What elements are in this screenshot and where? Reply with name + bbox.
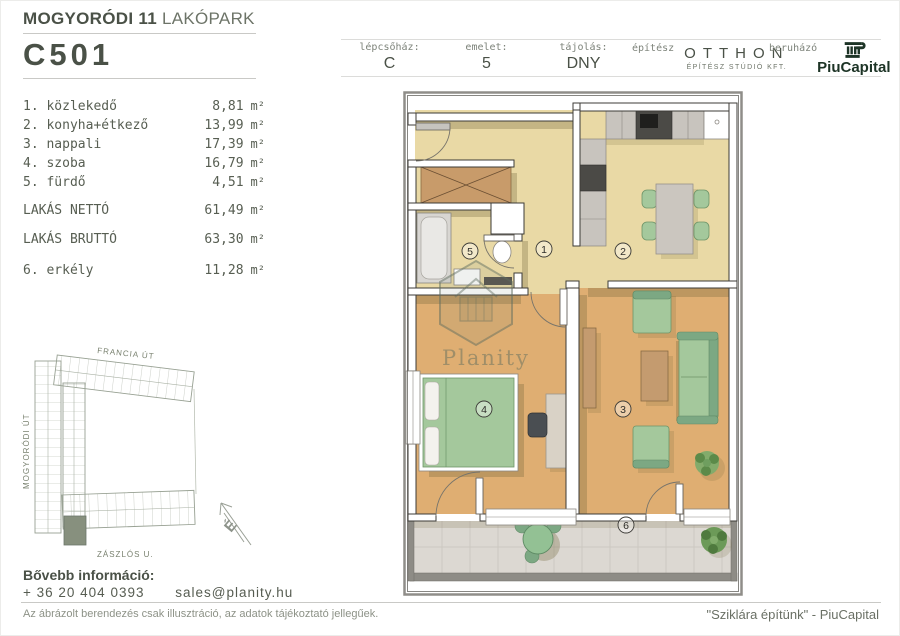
- disclaimer-text: Az ábrázolt berendezés csak illusztráció…: [23, 608, 378, 620]
- developer-logo: PiuCapital: [817, 40, 892, 76]
- info-label: Bővebb információ:: [23, 567, 154, 583]
- total-net-row: LAKÁS NETTÓ 61,49 m²: [23, 201, 265, 220]
- floor-plan-drawing: 1 2 3 4 5 6: [400, 89, 746, 599]
- room-label-5: 5: [462, 243, 478, 259]
- window: [406, 371, 420, 444]
- desk-chair: [528, 413, 547, 437]
- armchair: [633, 426, 669, 468]
- room-area: 8,81: [196, 97, 244, 116]
- area-unit: m²: [251, 261, 265, 280]
- area-unit: m²: [251, 154, 265, 173]
- room-area: 4,51: [196, 173, 244, 192]
- project-title-bold: MOGYORÓDI 11: [23, 9, 157, 28]
- dining-table: [656, 184, 693, 254]
- total-area: 63,30: [196, 230, 244, 249]
- area-unit: m²: [251, 201, 265, 220]
- dining-chair: [642, 222, 657, 240]
- slogan-text: "Sziklára építünk" - PiuCapital: [706, 607, 879, 622]
- title-divider: [23, 33, 256, 34]
- room-row-1: 1. közlekedő 8,81 m²: [23, 97, 265, 116]
- shaft: [491, 203, 524, 234]
- svg-text:3: 3: [620, 404, 626, 416]
- building-outline: [35, 355, 196, 533]
- svg-text:6: 6: [623, 520, 629, 532]
- email-address[interactable]: sales@planity.hu: [175, 585, 293, 600]
- tv-cabinet: [583, 328, 596, 408]
- total-area: 61,49: [196, 201, 244, 220]
- area-unit: m²: [251, 97, 265, 116]
- bed: [419, 374, 518, 471]
- dining-chair: [694, 222, 709, 240]
- sofa: [677, 332, 718, 424]
- room-name: 6. erkély: [23, 261, 196, 280]
- room-area: 17,39: [196, 135, 244, 154]
- room-area: 11,28: [196, 261, 244, 280]
- dining-chair: [694, 190, 709, 208]
- site-plan: FRANCIA ÚT MOGYORÓDI ÚT ZÁSZLÓS U. É: [17, 331, 273, 569]
- window: [684, 509, 730, 525]
- area-unit: m²: [251, 230, 265, 249]
- developer-cell: beruházó PiuCapital: [769, 40, 881, 76]
- header-strip: lépcsőház: C emelet: 5 tájolás: DNY épít…: [341, 39, 881, 77]
- room-area: 13,99: [196, 116, 244, 135]
- svg-text:4: 4: [481, 404, 487, 416]
- street-label-top: FRANCIA ÚT: [97, 346, 155, 361]
- watermark-text: Planity: [442, 346, 530, 370]
- room-row-5: 5. fürdő 4,51 m²: [23, 173, 265, 192]
- north-arrow: É: [220, 503, 251, 545]
- field-floor: emelet: 5: [438, 40, 535, 76]
- footer-divider: [21, 602, 881, 603]
- field-staircase-label: lépcsőház:: [341, 42, 438, 53]
- dining-chair: [642, 190, 657, 208]
- room-area: 16,79: [196, 154, 244, 173]
- bathtub: [417, 213, 451, 283]
- room-label-3: 3: [615, 401, 631, 417]
- room-label-1: 1: [536, 241, 552, 257]
- wardrobe: [421, 167, 511, 203]
- architect-label: építész: [632, 43, 674, 76]
- developer-name: PiuCapital: [817, 59, 890, 76]
- field-orientation: tájolás: DNY: [535, 40, 632, 76]
- room-row-2: 2. konyha+étkező 13,99 m²: [23, 116, 265, 135]
- svg-text:2: 2: [620, 246, 626, 258]
- room-label-6: 6: [618, 517, 634, 533]
- field-floor-label: emelet:: [438, 42, 535, 53]
- total-label: LAKÁS BRUTTÓ: [23, 230, 196, 249]
- room-label-2: 2: [615, 243, 631, 259]
- field-floor-value: 5: [438, 55, 535, 73]
- window: [486, 509, 576, 525]
- field-orientation-label: tájolás:: [535, 42, 632, 53]
- room-row-3: 3. nappali 17,39 m²: [23, 135, 265, 154]
- room-name: 4. szoba: [23, 154, 196, 173]
- area-unit: m²: [251, 135, 265, 154]
- room-list: 1. közlekedő 8,81 m² 2. konyha+étkező 13…: [23, 97, 265, 280]
- contact-line: + 36 20 404 0393 sales@planity.hu: [23, 585, 293, 600]
- street-label-bottom: ZÁSZLÓS U.: [97, 550, 154, 559]
- room-name: 1. közlekedő: [23, 97, 196, 116]
- architect-cell: építész OTTHON ÉPÍTÉSZ STÚDIÓ KFT.: [632, 40, 769, 76]
- pillow: [425, 382, 439, 420]
- room-label-4: 4: [476, 401, 492, 417]
- coffee-table: [641, 351, 668, 401]
- unit-id: C501: [23, 37, 113, 73]
- unit-divider: [23, 78, 256, 79]
- phone-number: + 36 20 404 0393: [23, 585, 144, 600]
- room-name: 5. fürdő: [23, 173, 196, 192]
- oven: [580, 165, 606, 191]
- area-unit: m²: [251, 116, 265, 135]
- balcony-table: [523, 524, 553, 554]
- svg-text:1: 1: [541, 244, 547, 256]
- area-unit: m²: [251, 173, 265, 192]
- highlighted-unit: [64, 516, 86, 545]
- room-name: 2. konyha+étkező: [23, 116, 196, 135]
- street-label-left: MOGYORÓDI ÚT: [22, 413, 31, 489]
- total-label: LAKÁS NETTÓ: [23, 201, 196, 220]
- piucapital-column-icon: [835, 40, 873, 60]
- pillow: [425, 427, 439, 465]
- armchair: [633, 291, 671, 333]
- svg-text:5: 5: [467, 246, 473, 258]
- room-name: 3. nappali: [23, 135, 196, 154]
- total-gross-row: LAKÁS BRUTTÓ 63,30 m²: [23, 230, 265, 249]
- project-title-light: LAKÓPARK: [162, 9, 255, 28]
- field-staircase-value: C: [341, 55, 438, 73]
- balcony: [408, 521, 737, 581]
- project-title: MOGYORÓDI 11 LAKÓPARK: [23, 9, 255, 29]
- field-orientation-value: DNY: [535, 55, 632, 73]
- developer-label: beruházó: [769, 43, 817, 76]
- room-row-4: 4. szoba 16,79 m²: [23, 154, 265, 173]
- field-staircase: lépcsőház: C: [341, 40, 438, 76]
- floor-plan-sheet: MOGYORÓDI 11 LAKÓPARK C501 lépcsőház: C …: [0, 0, 900, 636]
- balcony-row: 6. erkély 11,28 m²: [23, 261, 265, 280]
